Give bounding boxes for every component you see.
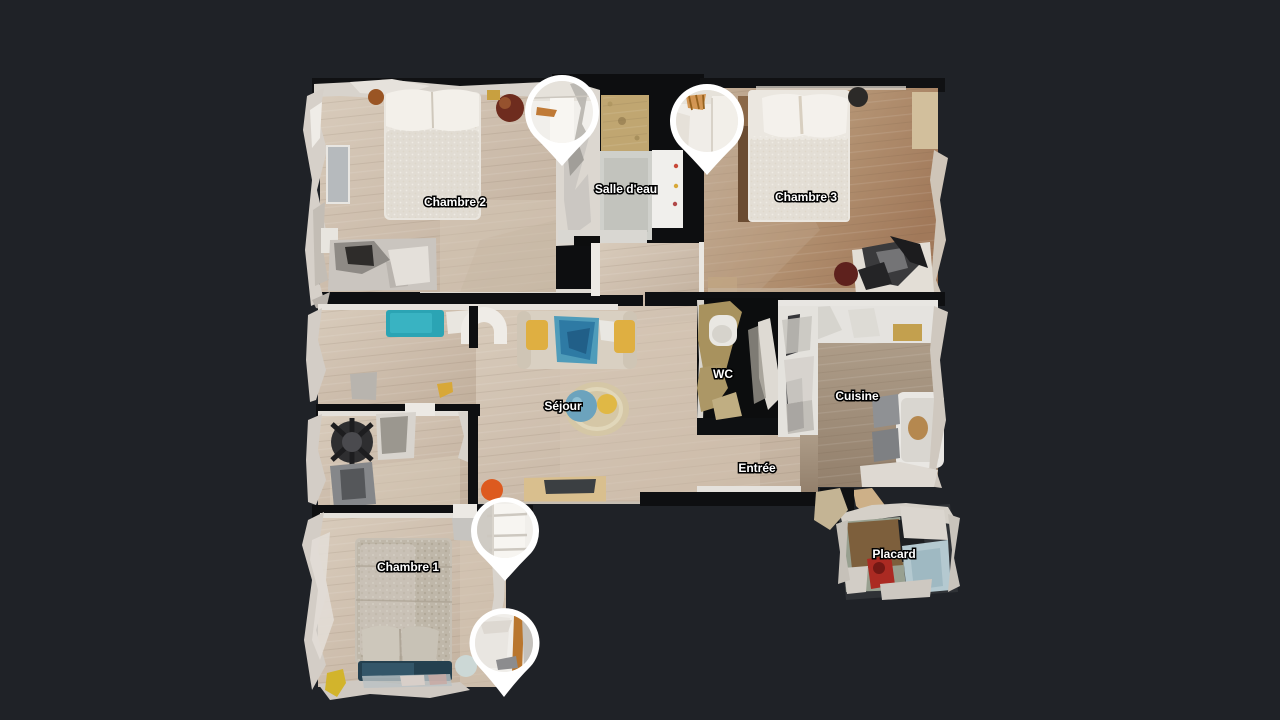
svg-text:Salle d'eau: Salle d'eau xyxy=(595,182,657,196)
svg-text:Chambre 1: Chambre 1 xyxy=(377,560,439,574)
svg-text:WC: WC xyxy=(713,367,733,381)
svg-text:Cuisine: Cuisine xyxy=(835,389,879,403)
svg-text:Chambre 3: Chambre 3 xyxy=(775,190,837,204)
svg-text:Entrée: Entrée xyxy=(738,461,776,475)
svg-text:Séjour: Séjour xyxy=(544,399,582,413)
svg-text:Chambre 2: Chambre 2 xyxy=(424,195,486,209)
svg-text:Placard: Placard xyxy=(872,547,915,561)
